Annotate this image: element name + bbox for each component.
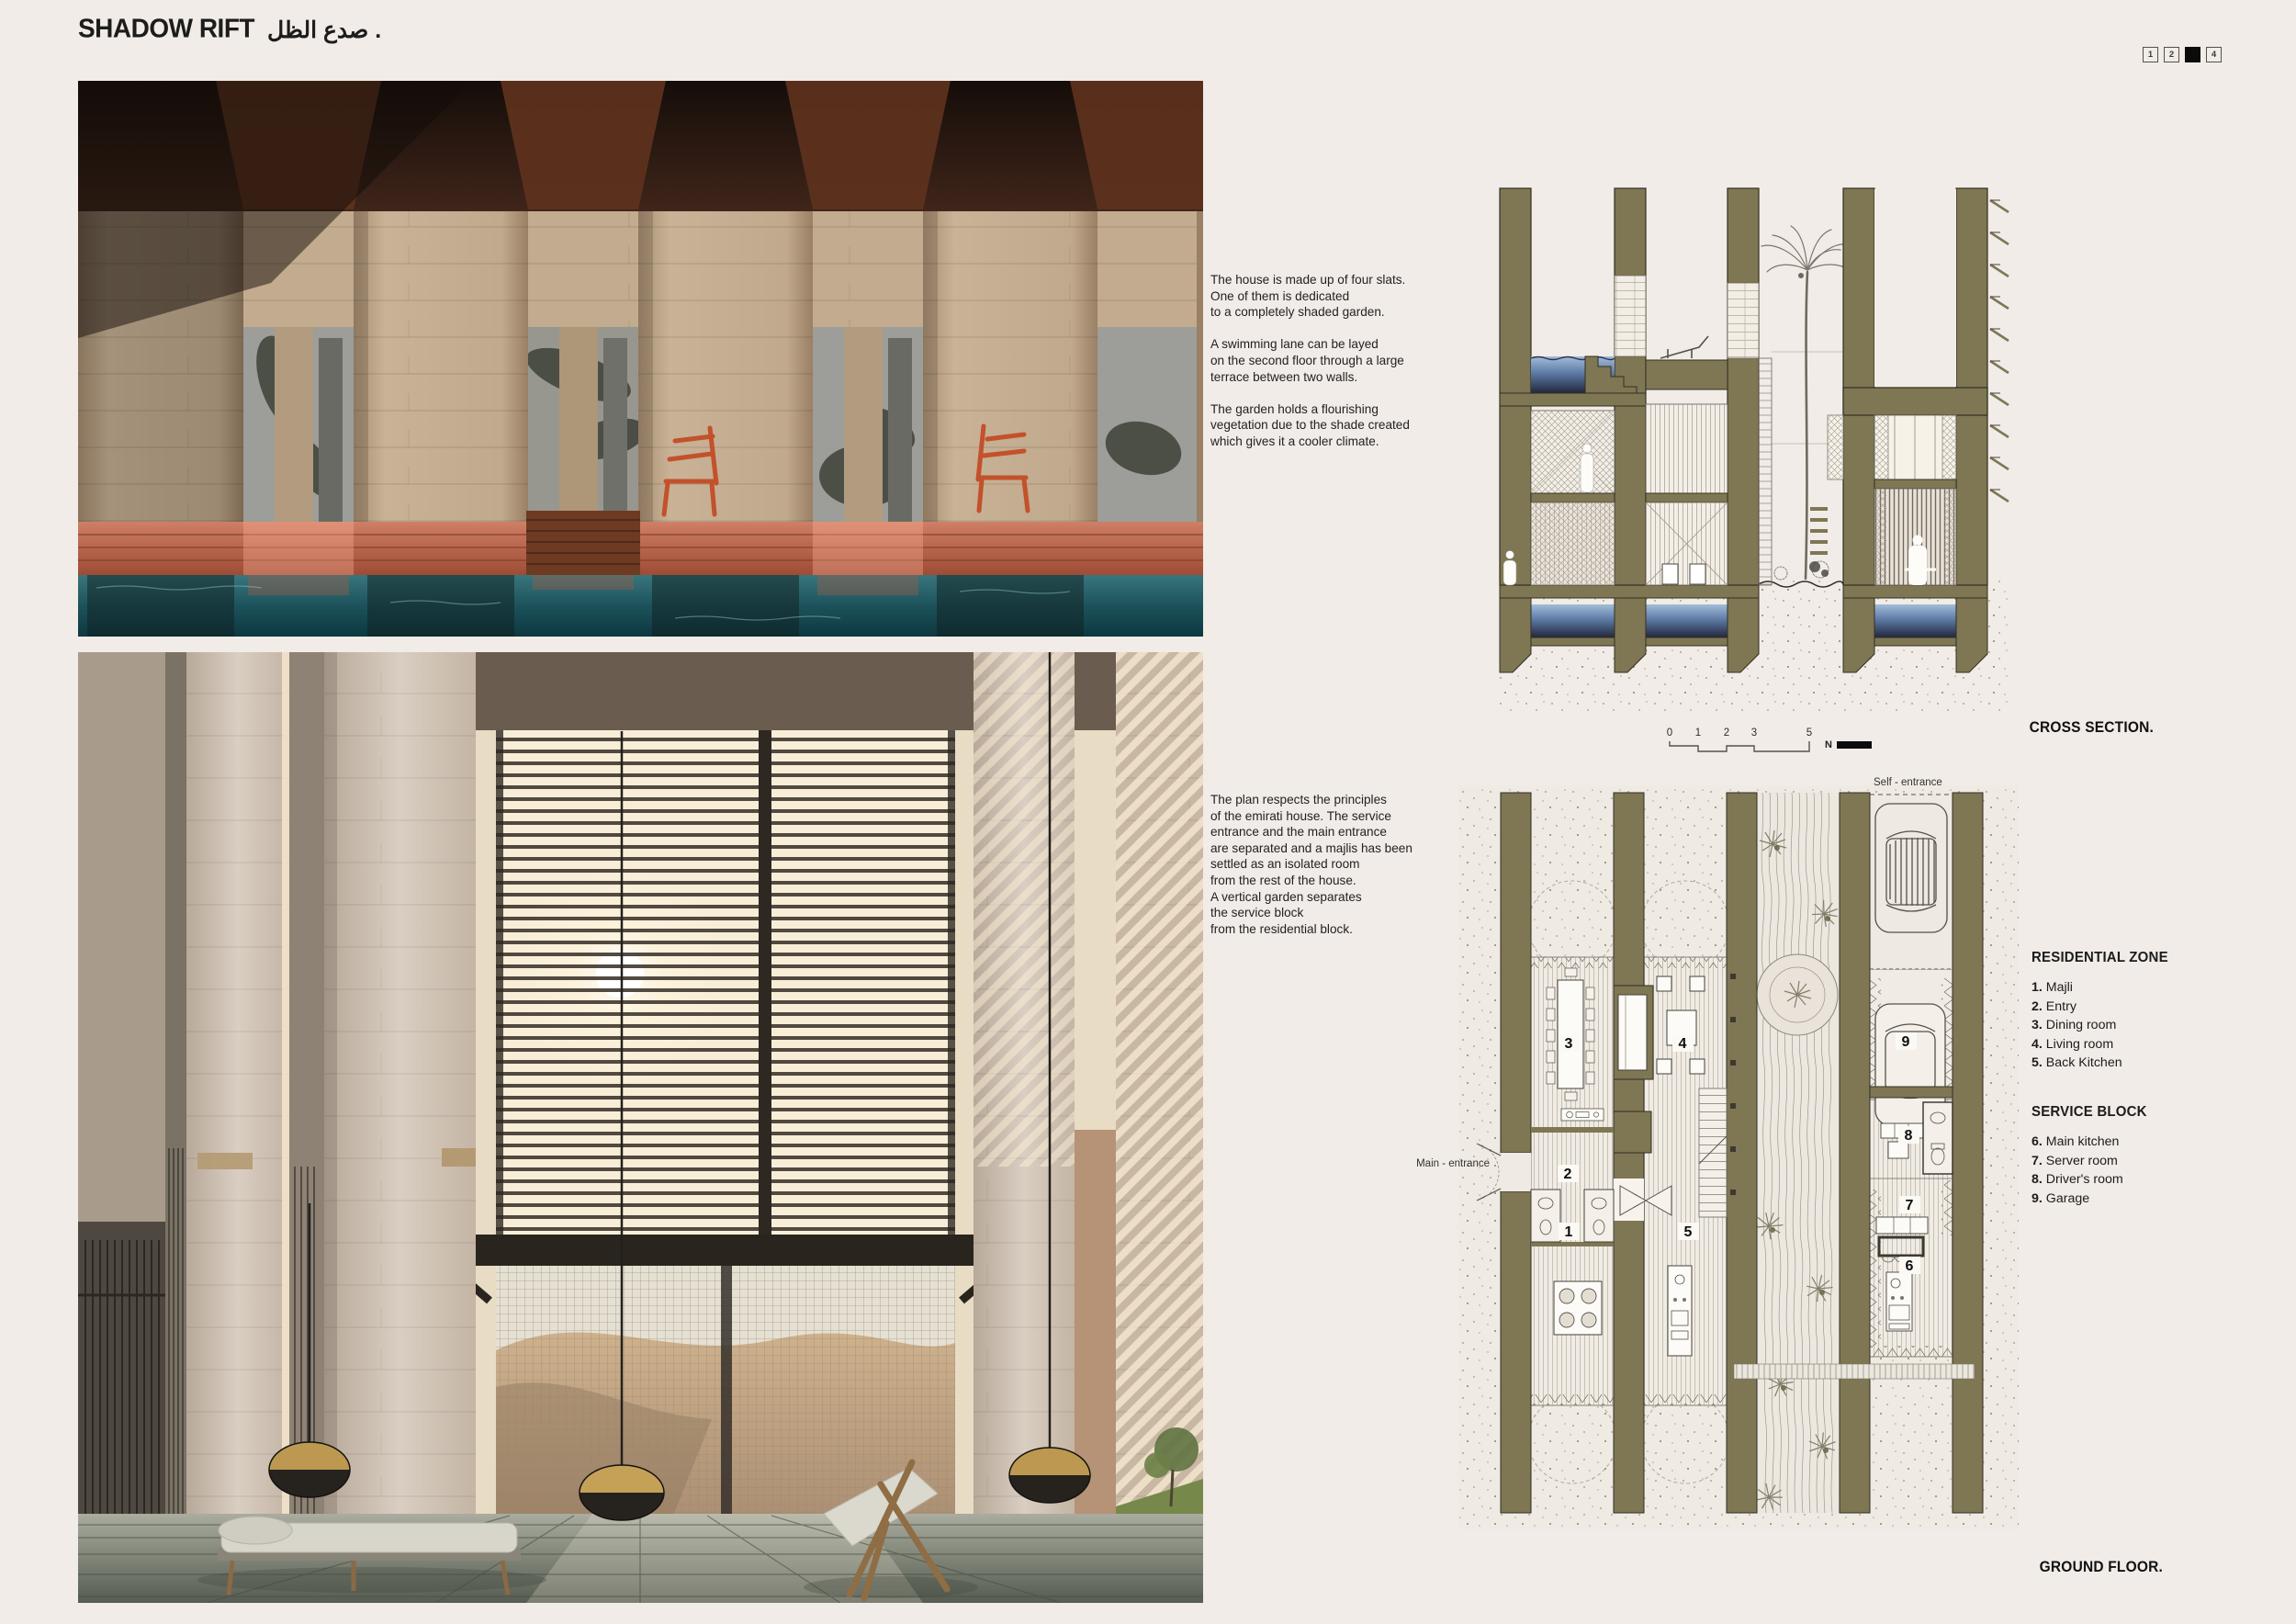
legend-item-mainkitchen: 6. Main kitchen [2032, 1133, 2275, 1152]
legend-label-8: Driver's room [2046, 1172, 2123, 1187]
legend-label-4: Living room [2046, 1037, 2113, 1052]
mashrabiya-window [444, 730, 1007, 1580]
service-block-title: SERVICE BLOCK [2032, 1104, 2275, 1121]
room-number-3: 3 [1565, 1036, 1573, 1052]
scale-bar-line [1667, 740, 1814, 755]
legend-item-living: 4. Living room [2032, 1035, 2275, 1054]
residential-zone-items: 1. Majli 2. Entry 3. Dining room 4. Livi… [2032, 978, 2275, 1073]
legend-item-driversroom: 8. Driver's room [2032, 1170, 2275, 1190]
room-number-2: 2 [1564, 1167, 1572, 1182]
legend-num-7: 7. [2032, 1154, 2043, 1168]
scale-tick-1: 1 [1695, 727, 1701, 739]
room-number-8: 8 [1905, 1128, 1913, 1144]
legend-label-5: Back Kitchen [2046, 1055, 2122, 1070]
room-number-7: 7 [1906, 1198, 1914, 1213]
section-pool [1500, 336, 1728, 406]
presentation-board: SHADOW RIFT صدع الظل . 1 2 4 [0, 0, 2296, 1624]
scale-tick-0: 0 [1667, 727, 1672, 739]
legend-num-5: 5. [2032, 1055, 2043, 1070]
section-garden [1759, 226, 1850, 587]
concept-text: The house is made up of four slats. One … [1210, 272, 1458, 450]
section-rooms-bc [1646, 404, 1728, 585]
legend-label-9: Garage [2046, 1191, 2089, 1206]
pool-water [78, 575, 1203, 637]
scale-ticks: 0 1 2 3 5 [1667, 727, 1883, 739]
section-rooms-de [1810, 415, 1956, 585]
legend-num-9: 9. [2032, 1191, 2043, 1206]
render-interior-photo [78, 652, 1203, 1603]
scale-tick-2: 2 [1724, 727, 1729, 739]
room-number-4: 4 [1679, 1036, 1687, 1052]
room-number-5: 5 [1684, 1224, 1693, 1240]
legend-label-3: Dining room [2046, 1018, 2117, 1032]
title-english: SHADOW RIFT [78, 14, 254, 44]
cross-section-drawing [1497, 184, 2011, 716]
ground-floor-plan: 1 2 3 4 5 6 7 8 9 [1458, 785, 2019, 1529]
scale-tick-5: 5 [1806, 727, 1812, 739]
legend-label-6: Main kitchen [2046, 1134, 2120, 1149]
room-number-9: 9 [1902, 1034, 1910, 1050]
page-box-4-label: 4 [2212, 50, 2216, 60]
legend-item-garage: 9. Garage [2032, 1190, 2275, 1209]
left-screen-wall [78, 652, 165, 1603]
legend-item-dining: 3. Dining room [2032, 1016, 2275, 1035]
legend-item-backkitchen: 5. Back Kitchen [2032, 1054, 2275, 1073]
legend-num-4: 4. [2032, 1037, 2043, 1052]
legend-num-3: 3. [2032, 1018, 2043, 1032]
page-title: SHADOW RIFT صدع الظل . [78, 15, 381, 44]
cross-section-caption: CROSS SECTION. [1929, 720, 2154, 738]
page-box-2-label: 2 [2169, 50, 2174, 60]
render-courtyard-photo [78, 81, 1203, 637]
ground-floor-caption: GROUND FLOOR. [1938, 1560, 2163, 1577]
legend-label-1: Majli [2046, 980, 2073, 995]
page-box-1-label: 1 [2148, 50, 2153, 60]
legend-num-1: 1. [2032, 980, 2043, 995]
page-box-4: 4 [2206, 47, 2222, 62]
legend-item-entry: 2. Entry [2032, 998, 2275, 1017]
north-bar-icon [1837, 741, 1872, 749]
room-number-6: 6 [1906, 1258, 1914, 1274]
section-rooms-ab [1531, 411, 1615, 585]
legend-item-serverroom: 7. Server room [2032, 1152, 2275, 1171]
legend-label-2: Entry [2046, 999, 2077, 1014]
self-entrance-label: Self - entrance [1874, 777, 1984, 788]
legend-num-6: 6. [2032, 1134, 2043, 1149]
legend-num-2: 2. [2032, 999, 2043, 1014]
legend-item-majli: 1. Majli [2032, 978, 2275, 998]
plan-garden-strip [1752, 793, 1843, 1514]
service-block-items: 6. Main kitchen 7. Server room 8. Driver… [2032, 1133, 2275, 1208]
main-entrance-label: Main - entrance [1387, 1158, 1490, 1169]
plan-legend: RESIDENTIAL ZONE 1. Majli 2. Entry 3. Di… [2032, 950, 2275, 1239]
left-piers [186, 652, 476, 1532]
legend-num-8: 8. [2032, 1172, 2043, 1187]
room-number-1: 1 [1565, 1224, 1573, 1240]
page-box-2: 2 [2164, 47, 2179, 62]
page-box-3-active [2185, 47, 2200, 62]
north-label: N [1825, 739, 1832, 750]
title-arabic: صدع الظل . [267, 17, 381, 44]
page-box-1: 1 [2143, 47, 2158, 62]
scale-bar: 0 1 2 3 5 N [1667, 727, 1883, 759]
legend-label-7: Server room [2046, 1154, 2118, 1168]
sheet-pagination: 1 2 4 [2143, 47, 2222, 62]
plan-text: The plan respects the principles of the … [1210, 792, 1463, 937]
scale-tick-3: 3 [1751, 727, 1757, 739]
residential-zone-title: RESIDENTIAL ZONE [2032, 950, 2275, 966]
section-terraces [1990, 200, 2009, 502]
daybed [197, 1517, 546, 1595]
plan-walkway [1734, 1364, 1975, 1379]
